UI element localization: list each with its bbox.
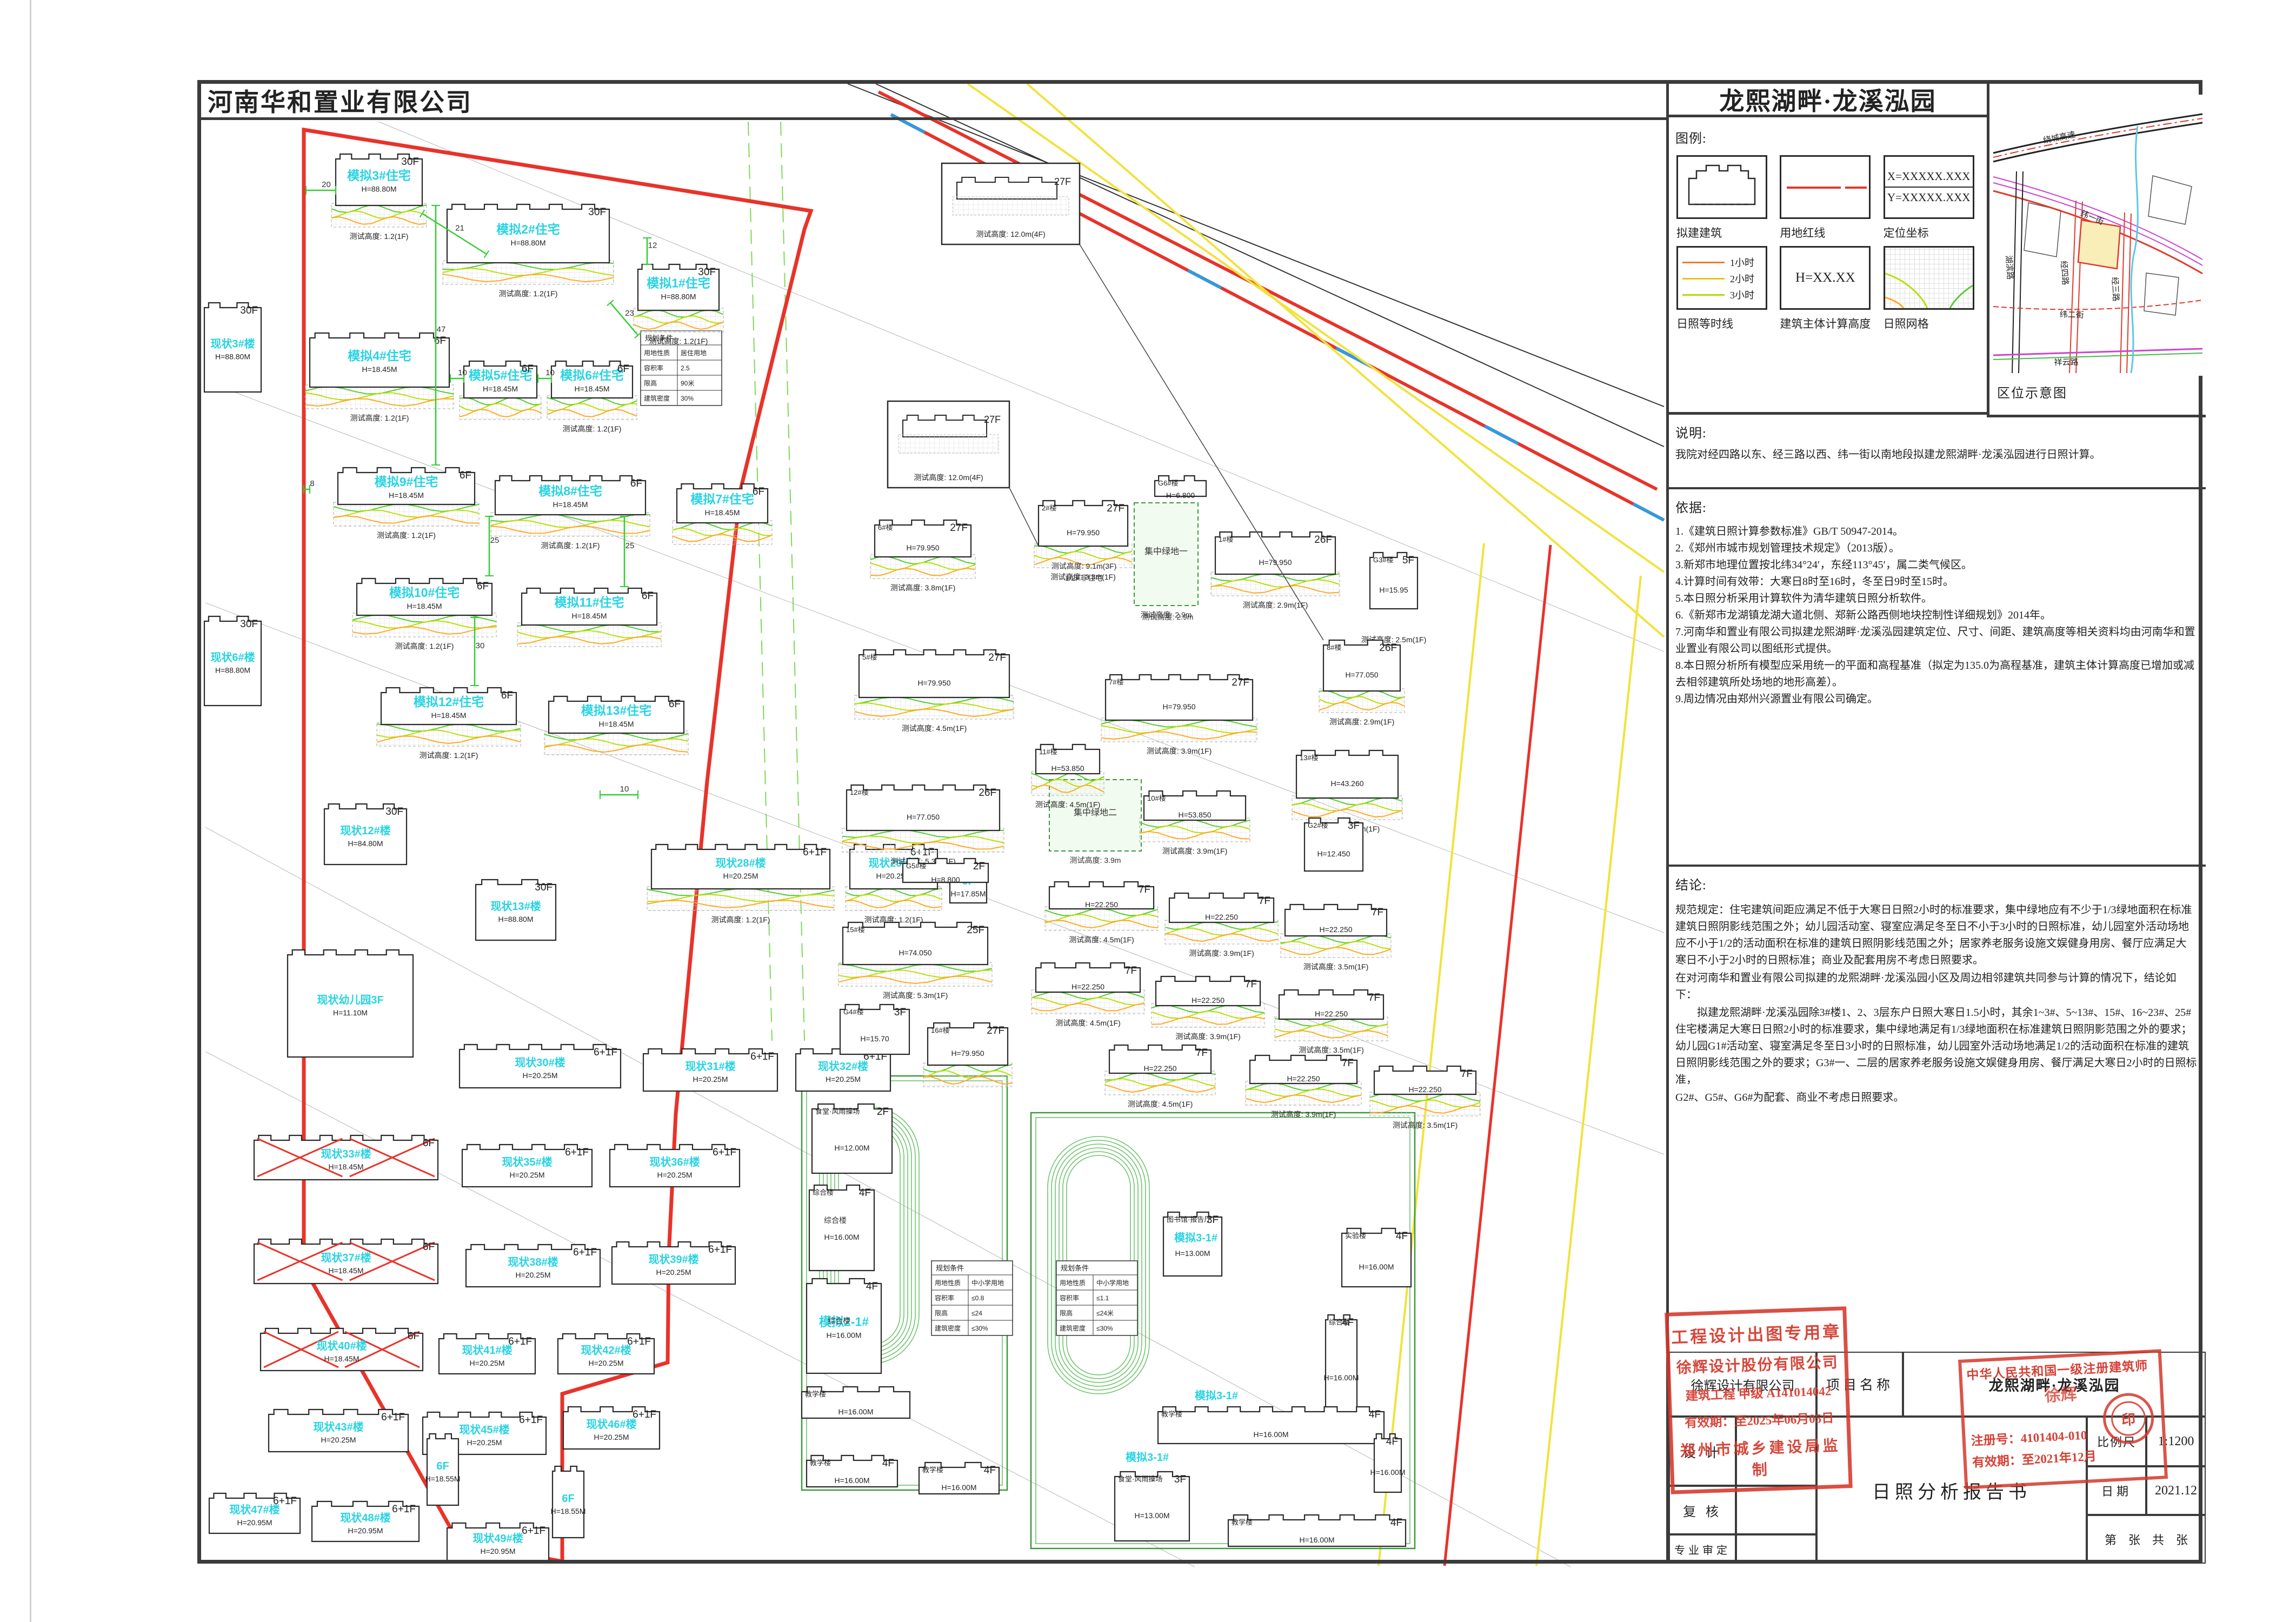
scan-edge <box>30 0 31 1622</box>
notes-title: 说明: <box>1669 415 2206 441</box>
legend-caption: 日照网格 <box>1884 315 1979 331</box>
coords-icon: X=XXXXX.XXX Y=XXXXX.XXX <box>1884 155 1974 219</box>
stamp-line: 郑州市城乡建设局监制 <box>1674 1434 1847 1483</box>
conclusion-section: 结论: 规范规定：住宅建筑间距应满足不低于大寒日日照2小时的标准要求，集中绿地应… <box>1669 867 2206 1352</box>
plan-text: 经四路 <box>2059 261 2069 285</box>
conclusion-paragraph: G2#、G5#、G6#为配套、商业不考虑日照要求。 <box>1675 1089 2197 1106</box>
stamp-line: 中华人民共和国一级注册建筑师 <box>1966 1355 2154 1383</box>
basis-item: 3.新郑市地理位置按北纬34°24′，东经113°45′，属二类气候区。 <box>1675 557 2197 574</box>
location-map: 绕城高速纬一街湖滨路经四路经三路纬二街祥云路 <box>1991 95 2205 376</box>
plan-text: 祥云路 <box>2054 358 2078 368</box>
legend-caption: 建筑主体计算高度 <box>1780 315 1875 331</box>
legend-item-sun-grid: 日照网格 <box>1884 246 1979 331</box>
conclusion-title: 结论: <box>1669 867 2206 893</box>
basis-item: 5.本日照分析采用计算软件为清华建筑日照分析软件。 <box>1675 590 2197 607</box>
isochrone-label: 1小时 <box>1730 255 1754 269</box>
titlebar-left: 河南华和置业有限公司 <box>201 84 1666 120</box>
notes-body: 我院对经四路以东、经三路以西、纬一街以南地段拟建龙熙湖畔·龙溪泓园进行日照计算。 <box>1669 441 2206 463</box>
isochrone-row: 3小时 <box>1678 287 1766 303</box>
basis-item: 8.本日照分析所有模型应采用统一的平面和高程基准（拟定为135.0为高程基准，建… <box>1675 657 2197 691</box>
calc-height-icon: H=XX.XX <box>1780 246 1871 310</box>
legend-section: 图例: 拟建建筑 用地红线 X=X <box>1669 120 1987 415</box>
basis-item: 9.周边情况由郑州兴源置业有限公司确定。 <box>1675 691 2197 708</box>
coord-x: X=XXXXX.XXX <box>1885 167 1973 188</box>
legend-item-proposed-building: 拟建建筑 <box>1676 155 1772 241</box>
legend-grid: 拟建建筑 用地红线 X=XXXXX.XXX Y=XXXXX.XXX 定位坐标 <box>1669 147 1987 331</box>
basis-list: 1.《建筑日照计算参数标准》GB/T 50947-2014。2.《郑州市城市规划… <box>1669 516 2206 708</box>
stamp-line: 有效期：至2025年06月05日 <box>1673 1407 1846 1431</box>
seal-glyph: 印 <box>2110 1400 2146 1437</box>
legend-item-redline: 用地红线 <box>1780 155 1875 241</box>
location-map-cell: 绕城高速纬一街湖滨路经四路经三路纬二街祥云路 区位示意图 <box>1987 84 2206 417</box>
legend-item-coords: X=XXXXX.XXX Y=XXXXX.XXX 定位坐标 <box>1884 155 1979 241</box>
round-seal-icon: 印 <box>2102 1392 2155 1445</box>
conclusion-body: 规范规定：住宅建筑间距应满足不低于大寒日日照2小时的标准要求，集中绿地应有不少于… <box>1669 893 2206 1106</box>
stamp-line: 注册号：4101404-010 <box>1971 1425 2087 1449</box>
legend-item-isochrones: 1小时2小时3小时 日照等时线 <box>1676 246 1772 331</box>
isochrone-icon: 1小时2小时3小时 <box>1676 246 1767 310</box>
design-output-stamp: 工程设计出图专用章 徐辉设计股份有限公司 建筑工程 甲级 A141014042 … <box>1665 1306 1853 1494</box>
drawing-sheet: 集中绿地一测试高度: 2.9m集中绿地二测试高度: 3.9m规划条件用地性质居住… <box>0 0 2296 1622</box>
legend-item-calc-height: H=XX.XX 建筑主体计算高度 <box>1780 246 1875 331</box>
plan-text: 纬二街 <box>2059 310 2084 320</box>
basis-section: 依据: 1.《建筑日照计算参数标准》GB/T 50947-2014。2.《郑州市… <box>1669 489 2206 867</box>
legend-caption: 拟建建筑 <box>1676 224 1772 241</box>
project-title: 龙熙湖畔·龙溪泓园 <box>1719 82 1936 117</box>
titlebar-right: 龙熙湖畔·龙溪泓园 <box>1669 84 1987 117</box>
basis-item: 4.计算时间有效带：大寒日8时至16时，冬至日9时至15时。 <box>1675 574 2197 590</box>
conclusion-paragraph: 在对河南华和置业有限公司拟建的龙熙湖畔·龙溪泓园小区及周边相邻建筑共同参与计算的… <box>1675 970 2197 1003</box>
legend-caption: 用地红线 <box>1780 224 1875 241</box>
proposed-building-icon <box>1676 155 1767 219</box>
legend-caption: 日照等时线 <box>1676 315 1772 331</box>
coord-y: Y=XXXXX.XXX <box>1885 188 1973 208</box>
conclusion-paragraph: 规范规定：住宅建筑间距应满足不低于大寒日日照2小时的标准要求，集中绿地应有不少于… <box>1675 902 2197 969</box>
tb-review-value <box>1736 1486 1816 1534</box>
isochrone-label: 3小时 <box>1730 288 1754 302</box>
legend-caption: 定位坐标 <box>1884 224 1979 241</box>
calc-height-text: H=XX.XX <box>1781 248 1869 308</box>
stamp-line: 工程设计出图专用章 <box>1670 1318 1842 1348</box>
isochrone-row: 1小时 <box>1678 254 1766 270</box>
notes-section: 说明: 我院对经四路以东、经三路以西、纬一街以南地段拟建龙熙湖畔·龙溪泓园进行日… <box>1669 415 2206 489</box>
basis-item: 2.《郑州市城市规划管理技术规定》（2013版）。 <box>1675 540 2197 557</box>
sun-grid-icon <box>1884 246 1974 310</box>
location-map-caption: 区位示意图 <box>1997 382 2067 401</box>
registered-architect-stamp: 中华人民共和国一级注册建筑师 徐辉 注册号：4101404-010 有效期：至2… <box>1958 1349 2168 1489</box>
map-site-parcel <box>2078 220 2120 269</box>
isochrone-row: 2小时 <box>1678 270 1766 287</box>
tb-approve-value <box>1736 1534 1816 1564</box>
basis-item: 7.河南华和置业有限公司拟建龙熙湖畔·龙溪泓园建筑定位、尺寸、间距、建筑高度等相… <box>1675 624 2197 657</box>
tb-approve-label: 专业审定 <box>1669 1534 1736 1564</box>
basis-item: 6.《新郑市龙湖镇龙湖大道北侧、郑新公路西侧地块控制性详细规划》2014年。 <box>1675 607 2197 624</box>
isochrone-line <box>1682 262 1725 263</box>
basis-title: 依据: <box>1669 489 2206 516</box>
stamp-signature: 徐辉 <box>2044 1381 2077 1406</box>
isochrone-label: 2小时 <box>1730 271 1754 285</box>
legend-title: 图例: <box>1669 120 1987 147</box>
plan-text: 经三路 <box>2110 277 2120 302</box>
plan-text: 湖滨路 <box>2004 255 2014 280</box>
stamp-line: 徐辉设计股份有限公司 <box>1671 1351 1844 1378</box>
redline-icon <box>1780 155 1871 219</box>
company-title: 河南华和置业有限公司 <box>201 83 472 118</box>
isochrone-line <box>1682 278 1725 280</box>
stamp-line: 有效期：至2021年12月 <box>1972 1446 2097 1471</box>
isochrone-line <box>1682 294 1725 296</box>
conclusion-paragraph: 拟建龙熙湖畔·龙溪泓园除3#楼1、2、3层东户日照大寒日1.5小时，其余1~3#… <box>1675 1005 2197 1088</box>
stamp-line: 建筑工程 甲级 A141014042 <box>1672 1380 1845 1405</box>
tb-sheet-number: 第 张 共 张 <box>2087 1515 2206 1564</box>
basis-item: 1.《建筑日照计算参数标准》GB/T 50947-2014。 <box>1675 523 2197 540</box>
